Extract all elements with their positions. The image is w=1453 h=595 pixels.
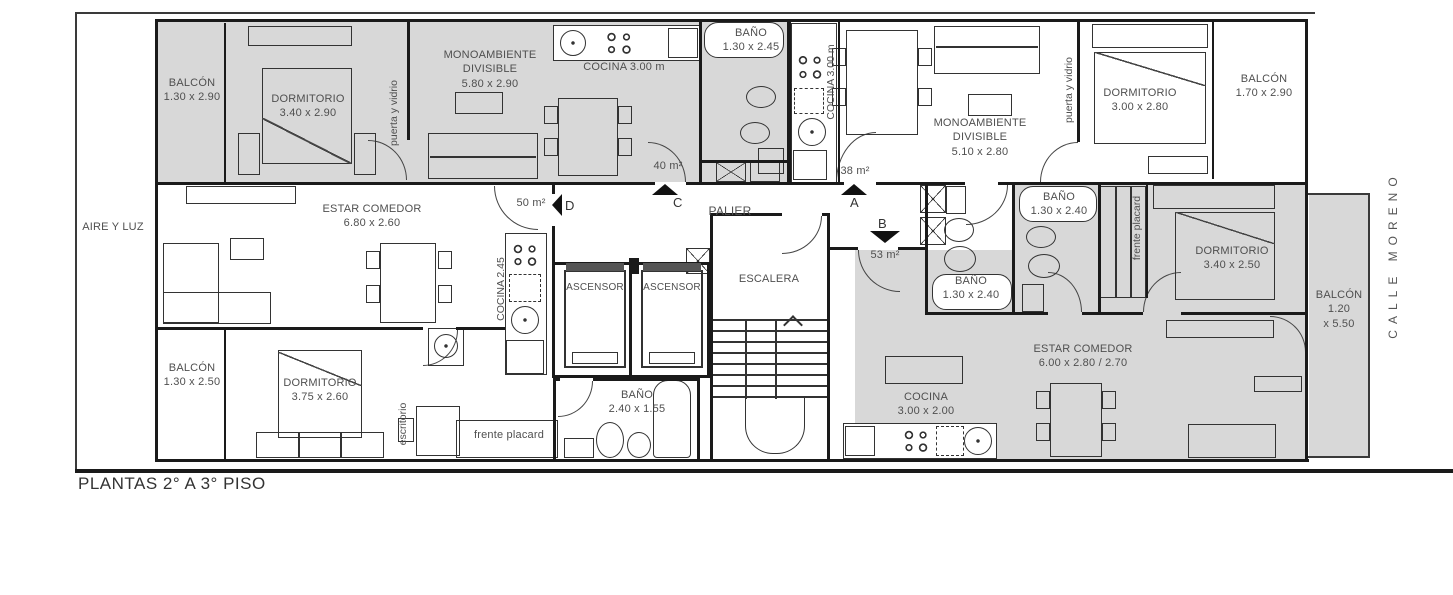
chair <box>918 88 932 106</box>
stove-icon <box>509 240 541 270</box>
unit-c-area: 40 m² <box>645 159 691 173</box>
wall <box>553 378 556 459</box>
dining-table <box>558 98 618 176</box>
label-bano-b: BAÑO1.30 x 2.40 <box>1020 190 1098 219</box>
unit-b-arrow <box>870 231 900 243</box>
elevator-post <box>629 258 639 274</box>
stove-icon <box>900 426 932 456</box>
wall <box>407 19 410 140</box>
wall <box>1146 182 1148 298</box>
wall <box>1082 312 1143 315</box>
label-ascensor-right: ASCENSOR <box>638 281 706 294</box>
elevator-sill <box>649 352 695 364</box>
chair <box>1036 423 1050 441</box>
tv-unit <box>1254 376 1302 392</box>
wall <box>697 378 700 459</box>
wall <box>686 182 844 185</box>
balcony-rail <box>1368 193 1370 458</box>
desk <box>416 406 460 456</box>
wall <box>1212 19 1214 179</box>
elevator-lintel <box>643 263 701 271</box>
stair-rail <box>775 319 777 399</box>
chair <box>918 48 932 66</box>
wall <box>1181 312 1307 315</box>
unit-a-letter: A <box>850 195 859 210</box>
wall <box>552 182 555 194</box>
sink-icon <box>964 427 992 455</box>
sofa <box>934 26 1040 74</box>
dining-table <box>380 243 436 323</box>
unit-a-arrow <box>841 184 867 195</box>
toilet-icon <box>746 86 776 108</box>
bath-sink <box>564 438 594 458</box>
label-balcon-d: BALCÓN1.30 x 2.50 <box>150 361 234 390</box>
label-estar-comedor-b: ESTAR COMEDOR6.00 x 2.80 / 2.70 <box>1026 342 1140 371</box>
label-dormitorio-c: DORMITORIO3.40 x 2.90 <box>266 92 350 121</box>
label-estar-comedor-d: ESTAR COMEDOR6.80 x 2.60 <box>318 202 426 231</box>
stair-rail <box>745 319 747 399</box>
label-dormitorio-b: DORMITORIO3.40 x 2.50 <box>1190 244 1274 273</box>
wall <box>876 182 965 185</box>
sink-icon <box>798 118 826 146</box>
unit-d-area: 50 m² <box>508 196 554 210</box>
sofa-line <box>936 46 1038 48</box>
elevator-lintel <box>566 263 624 271</box>
chair <box>544 106 558 124</box>
headboard-shelf <box>248 26 352 46</box>
shaft-box <box>920 217 946 245</box>
label-balcon-c: BALCÓN1.30 x 2.90 <box>150 76 234 105</box>
shaft-box <box>716 162 746 182</box>
property-line-top <box>75 12 1315 14</box>
chair <box>366 285 380 303</box>
headboard-shelf <box>1092 24 1208 48</box>
chair <box>544 138 558 156</box>
bed-fold <box>1175 212 1275 244</box>
label-aire-y-luz: AIRE Y LUZ <box>80 220 146 234</box>
stove-icon <box>602 28 636 58</box>
label-puerta-vidrio-c: puerta y vidrio <box>388 73 400 153</box>
label-calle-moreno: CALLE MORENO <box>1386 170 1400 340</box>
fridge <box>845 426 875 456</box>
chair <box>438 285 452 303</box>
bench-divider <box>340 432 342 458</box>
wall <box>830 247 858 250</box>
label-escalera: ESCALERA <box>736 272 802 286</box>
wall <box>155 327 423 330</box>
cabinet <box>793 150 827 180</box>
bed-bench <box>256 432 384 458</box>
label-dormitorio-a: DORMITORIO3.00 x 2.80 <box>1098 86 1182 115</box>
chair <box>438 251 452 269</box>
toilet-icon <box>596 422 624 458</box>
sofa <box>163 292 271 324</box>
coffee-table <box>230 238 264 260</box>
stair-tread <box>713 363 827 365</box>
stair-tread <box>713 352 827 354</box>
sofa-line <box>430 156 536 158</box>
chair <box>618 106 632 124</box>
door-arc <box>1040 142 1078 182</box>
label-frente-placard-d: frente placard <box>464 428 554 442</box>
label-frente-placard-b: frente placard <box>1131 185 1143 271</box>
bed-fold <box>262 118 352 164</box>
label-monoambiente-a: MONOAMBIENTEDIVISIBLE5.10 x 2.80 <box>928 116 1032 159</box>
wall <box>224 330 226 459</box>
label-puerta-vidrio-a: puerta y vidrio <box>1063 50 1075 130</box>
chair <box>1102 423 1116 441</box>
stair-return <box>745 396 805 454</box>
label-cocina-d: COCINA 2.45 <box>495 249 507 329</box>
section-line-bottom <box>75 469 1453 473</box>
wall <box>925 312 1015 315</box>
tv-unit <box>186 186 296 204</box>
stair-tread <box>713 341 827 343</box>
wall <box>1098 182 1101 315</box>
label-balcon-a: BALCÓN1.70 x 2.90 <box>1222 72 1306 101</box>
stair-wall <box>827 213 830 462</box>
chair <box>618 138 632 156</box>
label-cocina-b: COCINA3.00 x 2.00 <box>890 390 962 419</box>
bed-fold <box>1094 52 1206 86</box>
wall <box>155 19 1307 22</box>
wall <box>1015 312 1048 315</box>
door-arc <box>782 216 822 254</box>
headboard-shelf <box>1153 185 1275 209</box>
chair <box>1036 391 1050 409</box>
wall <box>699 19 702 182</box>
wall <box>998 182 1307 185</box>
label-cocina-a: COCINA 3.00 m <box>825 37 837 127</box>
bidet-icon <box>740 122 770 144</box>
fridge <box>668 28 698 58</box>
label-monoambiente-c: MONOAMBIENTEDIVISIBLE5.80 x 2.90 <box>438 48 542 91</box>
door-arc <box>966 185 1008 225</box>
wall <box>838 19 840 185</box>
balcony-rail <box>1307 456 1370 458</box>
label-balcon-b: BALCÓN1.20x 5.50 <box>1310 288 1368 331</box>
stair-tread <box>713 319 827 321</box>
unit-d-letter: D <box>565 198 574 213</box>
coffee-table <box>455 92 503 114</box>
shaft-box <box>920 185 946 213</box>
nightstand <box>238 133 260 175</box>
bench-divider <box>298 432 300 458</box>
unit-d-arrow <box>552 194 562 216</box>
property-line-left <box>75 12 77 470</box>
bidet-icon <box>1028 254 1060 278</box>
stair-tread <box>713 374 827 376</box>
wall <box>155 182 655 185</box>
dresser <box>1148 156 1208 174</box>
nightstand <box>354 133 376 175</box>
label-escritorio-d: escritorio <box>397 392 409 456</box>
dining-table <box>1050 383 1102 457</box>
dining-table <box>846 30 918 135</box>
wall <box>699 160 791 163</box>
wall <box>1012 182 1015 315</box>
door-arc <box>558 381 593 417</box>
wall <box>593 378 700 381</box>
unit-c-arrow <box>652 184 678 195</box>
sofa <box>1188 424 1276 458</box>
floor-plan-canvas: 40 m² C 50 m² D 38 m² A B 53 m² BALCÓN1.… <box>0 0 1453 595</box>
kitchen-island <box>885 356 963 384</box>
elevator-shaft-wall <box>629 262 632 378</box>
bath-sink <box>946 186 966 214</box>
dresser <box>1166 320 1274 338</box>
stair-wall <box>822 213 830 216</box>
label-bano-c: BAÑO1.30 x 2.45 <box>714 26 788 55</box>
label-ascensor-left: ASCENSOR <box>561 281 629 294</box>
bath-sink <box>1022 284 1044 312</box>
page-title: PLANTAS 2° A 3° PISO <box>78 474 266 494</box>
stair-tread <box>713 385 827 387</box>
oven <box>509 274 541 302</box>
coffee-table <box>968 94 1012 116</box>
laundry-drum <box>434 334 458 358</box>
label-bano-a: BAÑO1.30 x 2.40 <box>932 274 1010 303</box>
balcony-rail <box>1307 193 1370 195</box>
stove-icon <box>794 50 826 84</box>
sink-icon <box>511 306 539 334</box>
unit-b-letter: B <box>878 216 887 231</box>
oven <box>794 88 824 114</box>
bidet-icon <box>944 246 976 272</box>
chair <box>1102 391 1116 409</box>
oven <box>936 426 964 456</box>
chair <box>366 251 380 269</box>
wall <box>552 226 555 378</box>
label-cocina-c: COCINA 3.00 m <box>576 60 672 74</box>
wall <box>925 182 928 315</box>
toilet-icon <box>1026 226 1056 248</box>
cabinet <box>506 340 544 374</box>
unit-c-letter: C <box>673 195 682 210</box>
unit-a-area: 38 m² <box>832 164 878 178</box>
elevator-sill <box>572 352 618 364</box>
toilet-icon <box>944 218 974 242</box>
wall <box>155 459 1309 462</box>
unit-b-area: 53 m² <box>862 248 908 262</box>
label-palier: PALIER <box>702 204 758 220</box>
label-bano-d: BAÑO2.40 x 1.55 <box>600 388 674 417</box>
placard-divider <box>1115 186 1117 298</box>
wall <box>1077 19 1080 142</box>
stair-tread <box>713 330 827 332</box>
sink-icon <box>560 30 586 56</box>
bidet-icon <box>627 432 651 458</box>
label-dormitorio-d: DORMITORIO3.75 x 2.60 <box>278 376 362 405</box>
stair-wall <box>710 213 713 462</box>
